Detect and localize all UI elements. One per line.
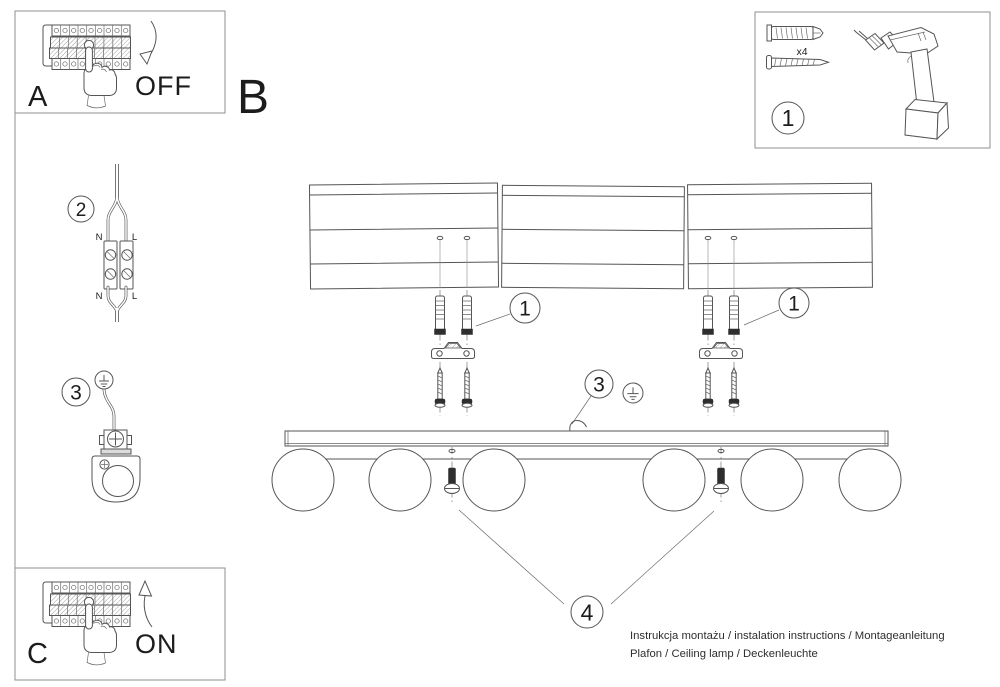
terminal-block — [104, 241, 133, 289]
panel-c: ON C — [15, 568, 225, 680]
mounting-screw-icon — [729, 368, 739, 407]
grounding-step: 3 — [62, 371, 140, 502]
bracket-icon — [432, 343, 475, 359]
wire-label-n-top: N — [96, 232, 103, 243]
thumbscrew-icon — [445, 449, 460, 493]
arrow-down-icon — [140, 21, 156, 64]
section-b-label: B — [237, 71, 269, 124]
step-1-badge-tools: 1 — [772, 102, 804, 134]
footer-line-2: Plafon / Ceiling lamp / Deckenleuchte — [630, 648, 818, 660]
lamp-globe — [272, 449, 334, 511]
ground-clamp-illustration — [92, 390, 140, 502]
wall-plug-icon — [462, 296, 473, 335]
ground-wire-hook — [570, 421, 587, 432]
wall-plug-icon — [435, 296, 446, 335]
thumbscrew-icon — [714, 449, 729, 493]
step-1-badge-left: 1 — [510, 293, 540, 323]
lamp-globe — [839, 449, 901, 511]
svg-text:1: 1 — [519, 298, 531, 321]
wall-plug-icon — [703, 296, 714, 335]
panel-a-label: A — [28, 81, 48, 113]
tools-panel: x4 1 — [755, 12, 990, 148]
leader-line — [744, 310, 779, 325]
panel-a: OFF A — [15, 11, 225, 113]
mounting-screw-icon — [462, 368, 472, 407]
wire-label-n-bottom: N — [96, 291, 103, 302]
mounting-screw-icon — [435, 368, 445, 407]
mounting-hardware: 1 1 — [432, 288, 810, 416]
footer-line-1: Instrukcja montażu / instalation instruc… — [630, 630, 945, 642]
ground-symbol-left — [95, 371, 113, 389]
step-3-badge-left: 3 — [62, 378, 90, 406]
breaker-off-illustration — [43, 25, 131, 108]
lamp-globe — [463, 449, 525, 511]
panel-a-state: OFF — [135, 71, 192, 101]
bracket-icon — [700, 343, 743, 359]
screw-count-label: x4 — [796, 46, 807, 58]
wire-label-l-bottom: L — [132, 291, 137, 302]
ceiling-illustration — [309, 183, 872, 289]
ground-callout: 3 — [572, 370, 643, 424]
arrow-up-icon — [139, 581, 152, 627]
wall-plug-icon — [767, 25, 823, 41]
step-2-badge: 2 — [68, 196, 94, 222]
ground-symbol — [623, 383, 643, 403]
wiring-illustration: N L N L — [96, 164, 138, 322]
mounting-screw-icon — [703, 368, 713, 407]
svg-text:4: 4 — [581, 600, 594, 626]
lamp-globe — [369, 449, 431, 511]
svg-text:3: 3 — [70, 382, 82, 405]
svg-text:1: 1 — [782, 105, 795, 131]
leader-line — [572, 396, 591, 424]
leader-line — [476, 314, 510, 326]
leader-line — [459, 510, 714, 604]
instruction-sheet: OFF A B x4 1 — [0, 0, 1000, 687]
lamp-globe — [643, 449, 705, 511]
step-3-badge: 3 — [585, 370, 613, 398]
svg-text:1: 1 — [788, 293, 800, 316]
wall-plug-icon — [729, 296, 740, 335]
screws-callout: 4 — [459, 510, 714, 628]
wiring-step: 2 N L N L — [68, 164, 137, 322]
panel-c-label: C — [27, 638, 48, 670]
step-1-badge-right: 1 — [779, 288, 809, 318]
svg-text:2: 2 — [76, 200, 87, 221]
panel-c-state: ON — [135, 629, 178, 659]
svg-text:3: 3 — [593, 374, 605, 397]
lamp-illustration — [272, 421, 901, 512]
step-4-badge: 4 — [571, 596, 603, 628]
lamp-globe — [741, 449, 803, 511]
drill-icon — [854, 28, 949, 140]
breaker-on-illustration — [43, 582, 131, 665]
